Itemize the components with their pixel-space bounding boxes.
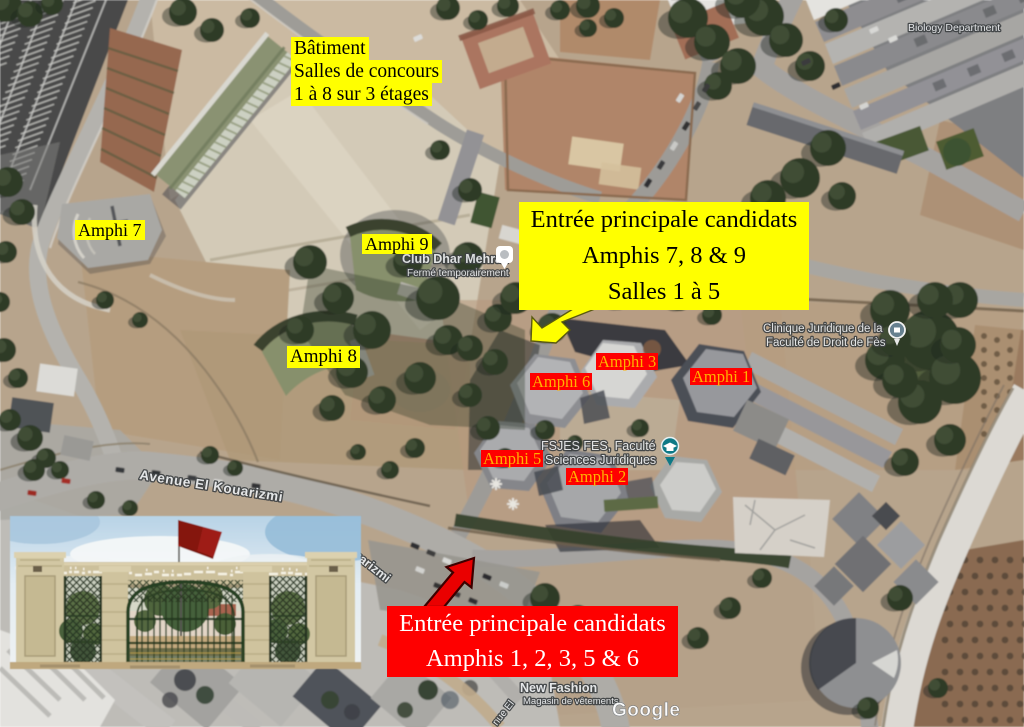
svg-text:Sciences Juridiques: Sciences Juridiques [545,453,656,467]
svg-text:Clinique Juridique de la: Clinique Juridique de la [763,323,883,335]
svg-text:Fermé temporairement: Fermé temporairement [407,268,509,279]
svg-text:FSJES FES, Faculté: FSJES FES, Faculté [541,439,656,453]
svg-text:Faculté de Droit de Fès: Faculté de Droit de Fès [766,337,886,349]
svg-text:Club Dhar Mehraz: Club Dhar Mehraz [402,252,508,266]
svg-text:New Fashion: New Fashion [520,681,597,695]
svg-text:Google: Google [612,700,680,721]
svg-text:Biology Department: Biology Department [908,22,1000,34]
svg-text:Magasin de vêtements: Magasin de vêtements [523,696,619,707]
